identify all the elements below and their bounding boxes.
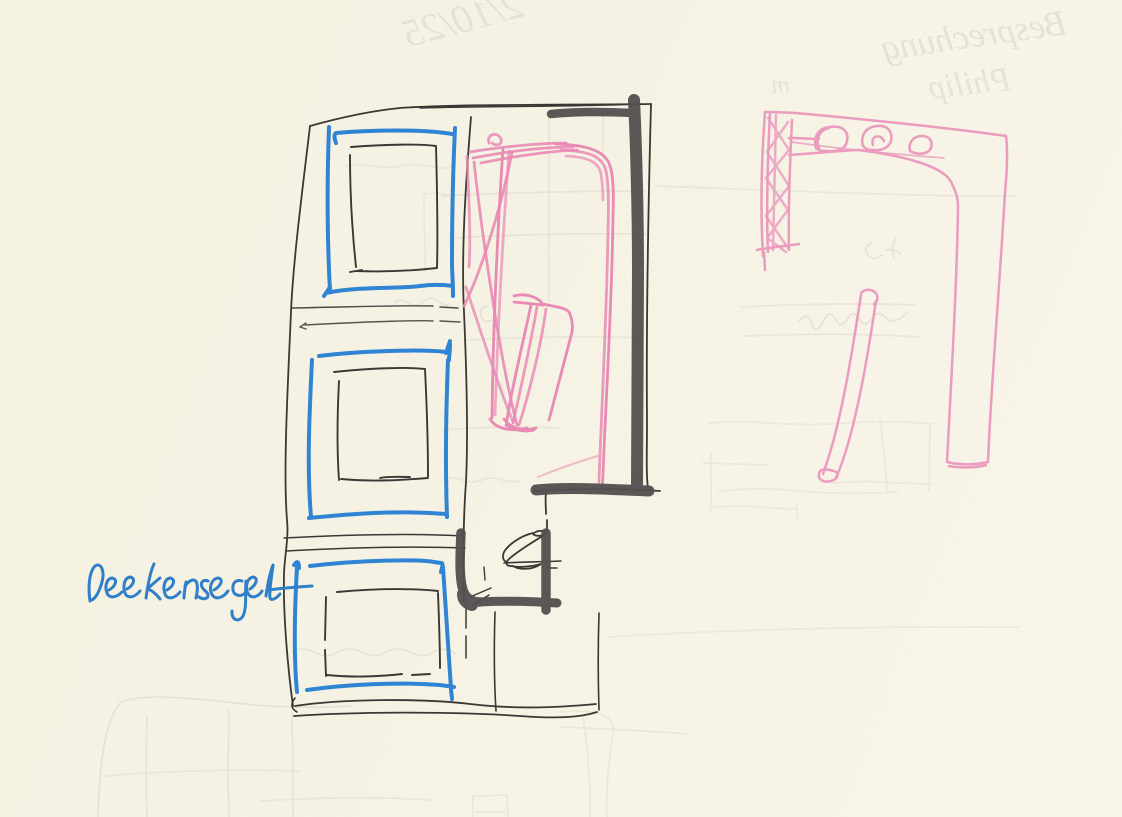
svg-text:m: m [771, 70, 790, 99]
